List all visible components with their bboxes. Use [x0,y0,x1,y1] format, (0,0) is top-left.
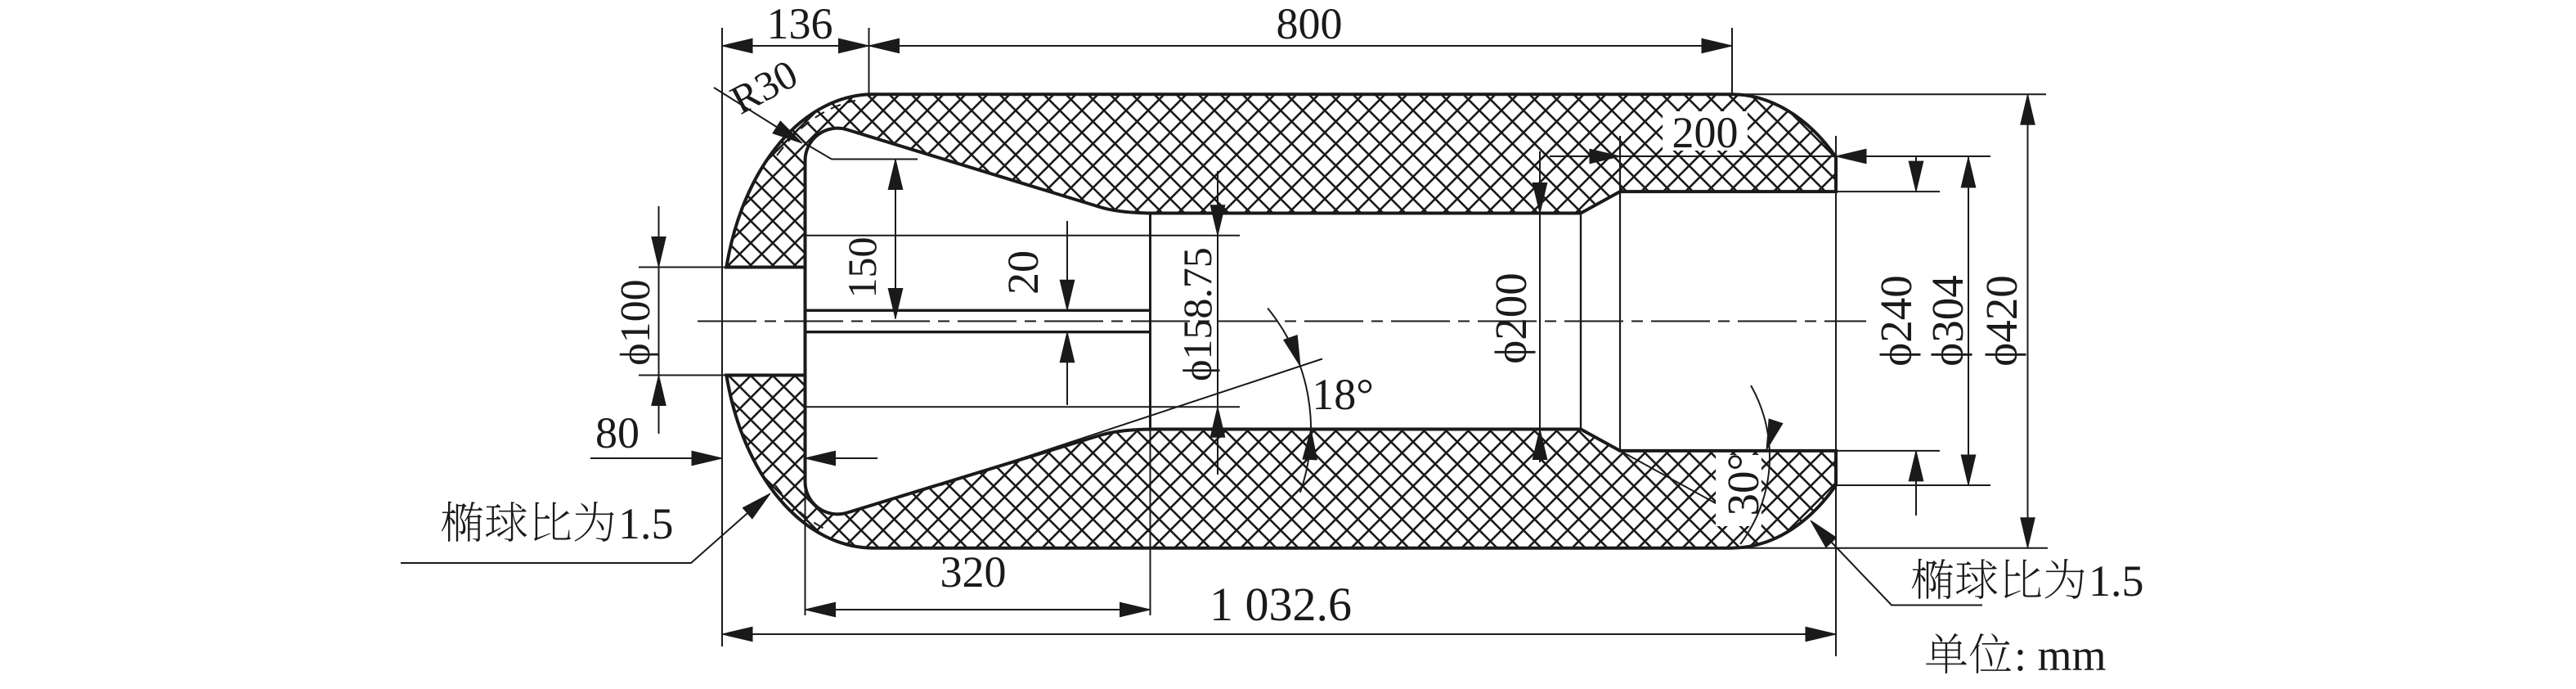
svg-text:1.5: 1.5 [2089,556,2144,606]
svg-text:: mm: : mm [2014,631,2107,680]
svg-text:80: 80 [595,408,640,457]
svg-text:200: 200 [1672,108,1739,157]
svg-text:ϕ158.75: ϕ158.75 [1174,247,1220,381]
svg-text:30°: 30° [1718,453,1768,516]
svg-text:800: 800 [1277,0,1343,48]
svg-text:18°: 18° [1312,370,1374,419]
svg-text:1.5: 1.5 [618,499,674,548]
svg-text:ϕ240: ϕ240 [1871,275,1921,366]
svg-text:136: 136 [767,0,833,48]
svg-text:320: 320 [940,547,1007,597]
svg-text:20: 20 [999,250,1048,295]
svg-text:ϕ304: ϕ304 [1923,275,1972,366]
svg-text:150: 150 [839,237,885,299]
svg-text:1 032.6: 1 032.6 [1209,578,1352,631]
svg-text:ϕ100: ϕ100 [613,279,659,365]
svg-text:ϕ200: ϕ200 [1486,272,1536,363]
svg-text:ϕ420: ϕ420 [1977,275,2026,366]
